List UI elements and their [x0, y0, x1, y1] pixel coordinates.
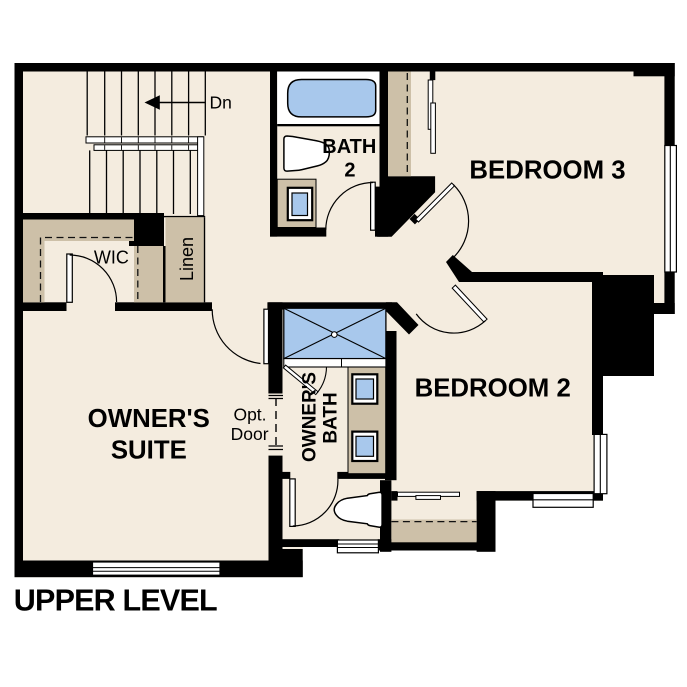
- svg-text:2: 2: [344, 160, 355, 182]
- svg-text:OWNER'S: OWNER'S: [300, 372, 321, 462]
- svg-text:BATH: BATH: [322, 136, 376, 158]
- svg-text:Opt.: Opt.: [233, 405, 266, 425]
- svg-text:BEDROOM 3: BEDROOM 3: [469, 157, 625, 185]
- svg-text:Door: Door: [231, 424, 269, 444]
- svg-text:BEDROOM 2: BEDROOM 2: [415, 375, 571, 403]
- svg-text:UPPER LEVEL: UPPER LEVEL: [14, 584, 217, 618]
- svg-text:Dn: Dn: [210, 93, 232, 113]
- svg-text:BATH: BATH: [321, 392, 342, 443]
- svg-text:OWNER'S: OWNER'S: [88, 405, 210, 433]
- svg-text:WIC: WIC: [94, 247, 129, 267]
- svg-text:Linen: Linen: [177, 237, 197, 281]
- svg-text:SUITE: SUITE: [111, 437, 187, 465]
